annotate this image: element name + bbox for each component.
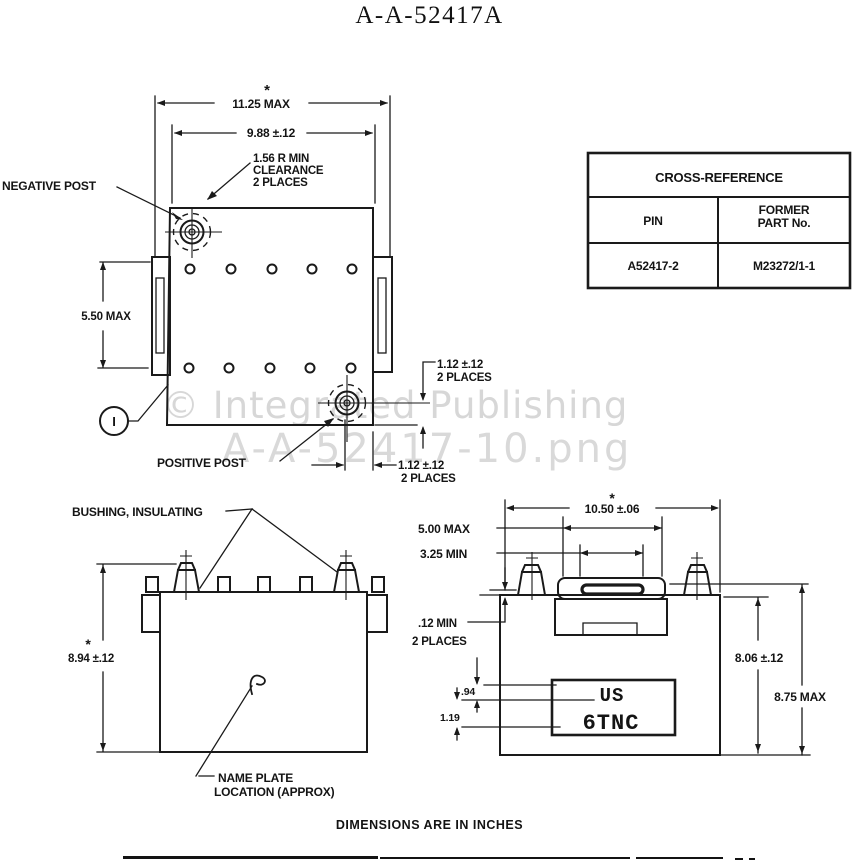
dim-label: 11.25 MAX	[232, 97, 290, 111]
column-header-former-2: PART No.	[758, 216, 811, 230]
column-header-pin: PIN	[643, 214, 662, 228]
right-flange	[373, 257, 392, 372]
dim-label: 9.88 ±.12	[247, 126, 296, 140]
bushing-callout: BUSHING, INSULATING	[72, 505, 337, 588]
negative-post-callout: NEGATIVE POST	[2, 179, 183, 220]
asterisk-note: *	[264, 82, 270, 99]
dim-5-50: 5.50 MAX	[81, 262, 150, 368]
dim-8-75: 8.75 MAX	[670, 584, 826, 755]
dim-label: 8.75 MAX	[774, 690, 826, 704]
pin-value: A52417-2	[627, 259, 679, 273]
negative-post-label: NEGATIVE POST	[2, 179, 97, 193]
column-header-former-1: FORMER	[759, 203, 810, 217]
dim-94-label: .94	[461, 686, 475, 698]
table-grid	[588, 197, 850, 288]
asterisk-note: *	[85, 636, 91, 652]
scan-artifact-bar	[636, 857, 723, 859]
note-line2: CLEARANCE	[253, 165, 324, 177]
dim-label-line1: 1.12 ±.12	[437, 359, 483, 371]
vent-caps	[146, 577, 384, 592]
dim-label: 8.06 ±.12	[735, 651, 784, 665]
scan-artifact-bar	[735, 858, 743, 860]
units-note: DIMENSIONS ARE IN INCHES	[0, 818, 859, 832]
scan-artifact-bar	[749, 858, 755, 860]
right-handle-slot	[378, 278, 386, 353]
dim-label: 5.00 MAX	[418, 522, 470, 536]
dim-8-06: 8.06 ±.12	[720, 597, 810, 755]
filler-cap-holes	[185, 265, 357, 373]
carry-handle	[555, 578, 667, 635]
balloon-text: I	[112, 414, 115, 429]
right-flange	[367, 595, 387, 632]
positive-post-label: POSITIVE POST	[157, 456, 247, 470]
scan-artifact-bar	[123, 856, 378, 859]
front-view: BUSHING, INSULATING * 8.94 ±.12 NAME PLA…	[68, 505, 387, 799]
engineering-drawing: 11.25 MAX * 9.88 ±.12 1.56 R MIN CLEARAN…	[0, 0, 859, 862]
plate-text-6tnc: 6TNC	[583, 711, 640, 736]
nameplate-label-line2: LOCATION (APPROX)	[214, 785, 335, 799]
dim-label: 8.94 ±.12	[68, 653, 114, 665]
dim-label: 5.50 MAX	[81, 311, 131, 323]
nameplate-callout: NAME PLATE LOCATION (APPROX)	[196, 676, 335, 799]
cross-reference-table: CROSS-REFERENCE PIN FORMER PART No. A524…	[588, 153, 850, 288]
dim-label-line2: 2 PLACES	[437, 372, 492, 384]
table-title: CROSS-REFERENCE	[655, 170, 783, 185]
dim-label-line1: 1.12 ±.12	[398, 460, 444, 472]
nameplate-label-line1: NAME PLATE	[218, 771, 293, 785]
bushing-label: BUSHING, INSULATING	[72, 505, 203, 519]
former-part-value: M23272/1-1	[753, 259, 816, 273]
note-line1: 1.56 R MIN	[253, 153, 309, 165]
dim-plate-rows: .94 1.19	[440, 658, 594, 740]
dim-119-label: 1.19	[440, 712, 460, 724]
dim-label-line2: 2 PLACES	[401, 473, 456, 485]
dim-label-line1: .12 MIN	[418, 618, 457, 630]
side-view: * 10.50 ±.06 5.00 MAX 3.25 MIN	[412, 490, 826, 755]
note-line3: 2 PLACES	[253, 177, 308, 189]
drawing-page: A-A-52417A © Integrated Publishing A-A-5…	[0, 0, 859, 862]
vent-manifold	[555, 599, 667, 635]
nameplate-hook	[251, 676, 265, 694]
dim-label: 3.25 MIN	[420, 547, 467, 561]
clearance-note: 1.56 R MIN CLEARANCE 2 PLACES	[207, 153, 324, 200]
dim-label: 10.50 ±.06	[585, 502, 640, 516]
front-outline	[160, 592, 367, 752]
plate-text-us: US	[600, 685, 625, 707]
left-handle-slot	[156, 278, 164, 353]
dim-1-12-bottom: 1.12 ±.12 2 PLACES	[312, 420, 456, 485]
scan-artifact-bar	[380, 857, 630, 859]
balloon-callout: I	[100, 385, 168, 435]
name-plate: US 6TNC	[552, 680, 675, 736]
top-view: 11.25 MAX * 9.88 ±.12 1.56 R MIN CLEARAN…	[2, 82, 492, 485]
left-flange	[142, 595, 160, 632]
dim-label-line2: 2 PLACES	[412, 636, 467, 648]
handle-grip	[582, 585, 643, 594]
